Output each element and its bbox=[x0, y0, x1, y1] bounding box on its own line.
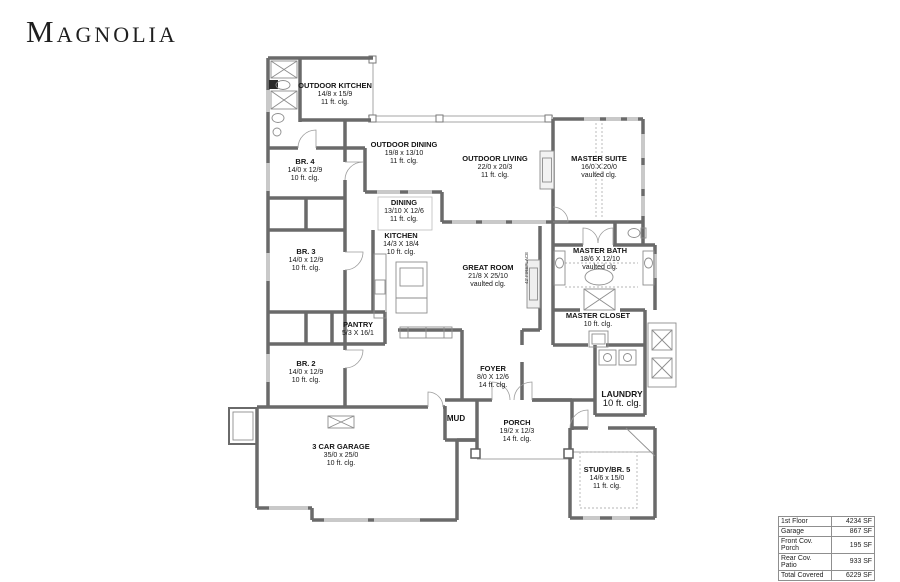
room-label-porch: PORCH 19/2 x 12/3 14 ft. clg. bbox=[500, 419, 535, 445]
room-label-foyer: FOYER 8/0 X 12/6 14 ft. clg. bbox=[477, 365, 509, 391]
floor-plan-drawing bbox=[0, 0, 900, 582]
area-row-value: 4234 SF bbox=[832, 517, 875, 527]
area-row-label: Total Covered bbox=[779, 570, 832, 580]
room-label-garage: 3 CAR GARAGE 35/0 x 25/0 10 ft. clg. bbox=[312, 443, 370, 469]
area-row-value: 867 SF bbox=[832, 527, 875, 537]
room-label-master-bath: MASTER BATH 18/6 X 12/10 vaulted clg. bbox=[573, 247, 627, 273]
room-label-pantry: PANTRY 5/3 X 16/1 bbox=[342, 321, 374, 338]
area-row-value: 6229 SF bbox=[832, 570, 875, 580]
porch-posts bbox=[471, 449, 573, 458]
room-label-great-room: GREAT ROOM 21/8 X 25/10 vaulted clg. bbox=[462, 264, 513, 290]
patio-columns bbox=[369, 56, 552, 122]
area-row-label: Front Cov. Porch bbox=[779, 537, 832, 554]
room-label-laundry: LAUNDRY 10 ft. clg. bbox=[601, 390, 642, 409]
area-row-value: 195 SF bbox=[832, 537, 875, 554]
room-label-br3: BR. 3 14/0 x 12/9 10 ft. clg. bbox=[289, 248, 324, 274]
table-row: Total Covered 6229 SF bbox=[779, 570, 875, 580]
room-label-dining: DINING 13/10 X 12/6 11 ft. clg. bbox=[384, 199, 424, 225]
table-row: 1st Floor 4234 SF bbox=[779, 517, 875, 527]
room-label-study-br5: STUDY/BR. 5 14/6 x 15/0 11 ft. clg. bbox=[584, 466, 631, 492]
fireplace-label: 42' FIREPLACE bbox=[524, 252, 529, 284]
room-label-master-closet: MASTER CLOSET 10 ft. clg. bbox=[566, 312, 630, 329]
room-label-outdoor-dining: OUTDOOR DINING 19/8 x 13/10 11 ft. clg. bbox=[371, 141, 438, 167]
area-row-label: 1st Floor bbox=[779, 517, 832, 527]
area-row-value: 933 SF bbox=[832, 553, 875, 570]
area-row-label: Rear Cov. Patio bbox=[779, 553, 832, 570]
room-label-br2: BR. 2 14/0 x 12/9 10 ft. clg. bbox=[289, 360, 324, 386]
room-label-br4: BR. 4 14/0 x 12/9 10 ft. clg. bbox=[288, 158, 323, 184]
area-row-label: Garage bbox=[779, 527, 832, 537]
room-label-mud: MUD bbox=[447, 415, 465, 424]
table-row: Garage 867 SF bbox=[779, 527, 875, 537]
room-label-outdoor-kitchen: OUTDOOR KITCHEN 14/8 x 15/9 11 ft. clg. bbox=[298, 82, 372, 108]
room-label-kitchen: KITCHEN 14/3 X 18/4 10 ft. clg. bbox=[383, 232, 419, 258]
ac-units bbox=[648, 323, 676, 387]
room-label-master-suite: MASTER SUITE 16/0 X 20/0 vaulted clg. bbox=[571, 155, 627, 181]
table-row: Rear Cov. Patio 933 SF bbox=[779, 553, 875, 570]
table-row: Front Cov. Porch 195 SF bbox=[779, 537, 875, 554]
room-label-outdoor-living: OUTDOOR LIVING 22/0 x 20/3 11 ft. clg. bbox=[462, 155, 527, 181]
area-summary-table: 1st Floor 4234 SF Garage 867 SF Front Co… bbox=[778, 516, 875, 581]
